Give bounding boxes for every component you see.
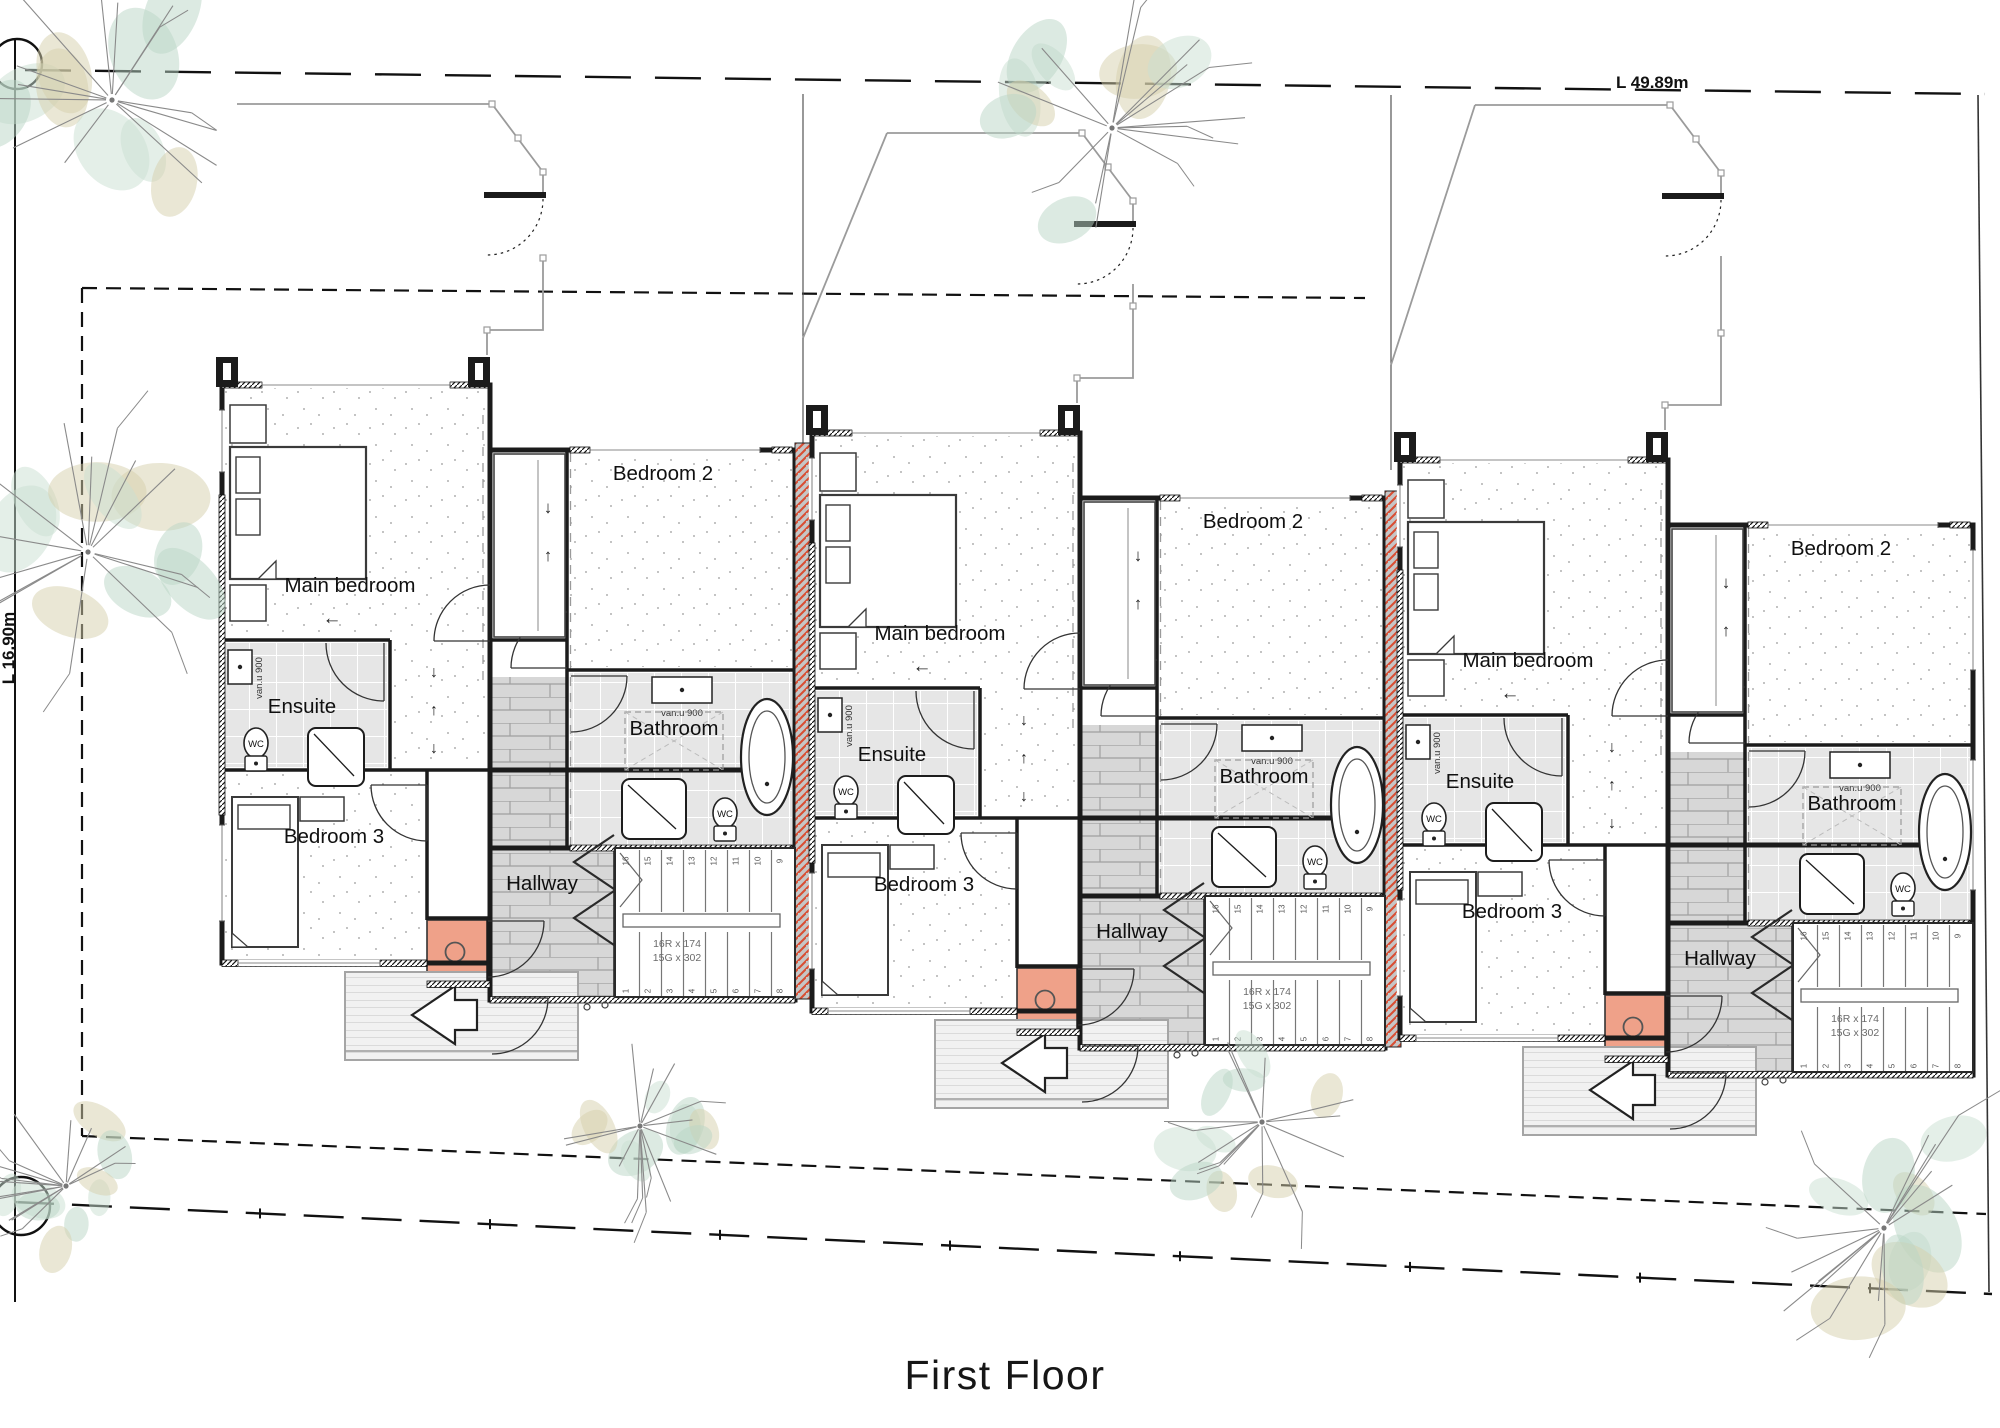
chimney — [1058, 405, 1080, 435]
toilet-icon: WC — [834, 776, 858, 819]
dimension-label-top: L 49.89m — [1616, 73, 1688, 92]
stair-tread-number: 12 — [1300, 904, 1309, 913]
stair-note-line1: 16R x 174 — [1243, 986, 1291, 998]
vanity-icon — [228, 650, 252, 684]
hatched-wall-segment — [1362, 495, 1382, 501]
room-label-ensuite: Ensuite — [268, 695, 336, 718]
stair-tread-number: 3 — [1844, 1063, 1853, 1068]
room-label-ensuite: Ensuite — [858, 743, 926, 766]
stair-tread-number: 15 — [1822, 931, 1831, 940]
stair-tread-number: 11 — [1322, 904, 1331, 913]
site-plan-drawing: L 49.89mL 16.90mvan.u 900WCvan.u 900WC↓↑… — [0, 0, 2000, 1428]
stair-note-line2: 15G x 302 — [653, 952, 702, 964]
stair-tread-number: 12 — [1888, 931, 1897, 940]
stair-tread-number: 16 — [1212, 904, 1221, 913]
arrow-down-icon: ↓ — [1020, 788, 1028, 805]
stair-tread-number: 9 — [1954, 933, 1963, 938]
arrow-down-icon: ↓ — [1608, 739, 1616, 756]
stair-tread-number: 5 — [1888, 1063, 1897, 1068]
stair-tread-number: 3 — [666, 988, 675, 993]
stair-tread-number: 9 — [1366, 906, 1375, 911]
hatched-wall-segment — [1397, 570, 1403, 890]
stairs: 1615141312111091234567816R x 17415G x 30… — [615, 848, 795, 997]
stair-tread-number: 4 — [1278, 1036, 1287, 1041]
tree — [1766, 1089, 2000, 1358]
stair-tread-number: 1 — [1212, 1036, 1221, 1041]
unit-3: van.u 900WCvan.u 900WC↓↑↓↑↓←161514131211… — [1391, 102, 1976, 1135]
stair-tread-number: 4 — [1866, 1063, 1875, 1068]
room-label-hallway: Hallway — [506, 872, 579, 895]
vanity-icon — [1406, 725, 1430, 759]
stair-tread-number: 7 — [754, 988, 763, 993]
stair-tread-number: 9 — [776, 858, 785, 863]
arrow-left-icon: ← — [323, 608, 342, 629]
stair-tread-number: 7 — [1932, 1063, 1941, 1068]
room-label-bathroom: Bathroom — [1220, 765, 1309, 788]
vanity-label: van.u 900 — [254, 657, 265, 699]
hatched-wall-segment — [1160, 495, 1180, 501]
wc-label: WC — [838, 787, 854, 798]
landing-floor — [1570, 718, 1666, 843]
arrow-up-icon: ↑ — [430, 702, 438, 719]
wc-label: WC — [248, 739, 264, 750]
stair-tread-number: 8 — [776, 988, 785, 993]
stair-note-line2: 15G x 302 — [1243, 1000, 1292, 1012]
stairs: 1615141312111091234567816R x 17415G x 30… — [1205, 896, 1385, 1045]
bathtub-icon — [741, 699, 793, 815]
landing-floor — [982, 691, 1078, 816]
stair-tread-number: 10 — [754, 856, 763, 865]
room-label-main-bedroom: Main bedroom — [284, 574, 415, 597]
stairs: 1615141312111091234567816R x 17415G x 30… — [1793, 923, 1973, 1072]
shower-icon — [622, 779, 686, 839]
toilet-icon: WC — [1422, 803, 1446, 846]
toilet-icon: WC — [1891, 873, 1915, 916]
room-label-bedroom-2: Bedroom 2 — [1203, 510, 1303, 533]
hatched-wall-segment — [1605, 1056, 1668, 1063]
room-label-ensuite: Ensuite — [1446, 770, 1514, 793]
vanity-label: van.u 900 — [844, 705, 855, 747]
stair-tread-number: 13 — [688, 856, 697, 865]
hatched-wall-segment — [570, 447, 590, 453]
arrow-down-icon: ↓ — [544, 498, 553, 517]
room-label-bedroom-2: Bedroom 2 — [613, 462, 713, 485]
stair-tread-number: 7 — [1344, 1036, 1353, 1041]
shower-icon — [1212, 827, 1276, 887]
unit-1: van.u 900WCvan.u 900WC↓↑↓↑↓←161514131211… — [216, 101, 811, 1060]
chimney — [1394, 432, 1416, 462]
wardrobe — [494, 454, 565, 637]
wc-label: WC — [1307, 857, 1323, 868]
tree — [564, 1044, 726, 1243]
stair-tread-number: 5 — [710, 988, 719, 993]
room-label-bathroom: Bathroom — [1808, 792, 1897, 815]
landing-floor — [392, 643, 488, 768]
shower-icon — [1486, 803, 1542, 861]
wc-label: WC — [1426, 814, 1442, 825]
wc-label: WC — [717, 809, 733, 820]
stair-tread-number: 8 — [1954, 1063, 1963, 1068]
room-label-bedroom-3: Bedroom 3 — [284, 825, 384, 848]
arrow-down-icon: ↓ — [430, 664, 438, 681]
stair-note-line1: 16R x 174 — [1831, 1013, 1879, 1025]
room-label-bathroom: Bathroom — [630, 717, 719, 740]
stair-tread-number: 10 — [1344, 904, 1353, 913]
vanity-icon — [1830, 752, 1890, 778]
unit-2: van.u 900WCvan.u 900WC↓↑↓↑↓←161514131211… — [803, 130, 1401, 1108]
shower-icon — [1800, 854, 1864, 914]
hatched-wall-segment — [1950, 522, 1970, 528]
stair-tread-number: 10 — [1932, 931, 1941, 940]
stair-tread-number: 15 — [644, 856, 653, 865]
stair-tread-number: 16 — [1800, 931, 1809, 940]
stair-tread-number: 16 — [622, 856, 631, 865]
vanity-icon — [1242, 725, 1302, 751]
stair-tread-number: 13 — [1278, 904, 1287, 913]
stair-tread-number: 1 — [1800, 1063, 1809, 1068]
ground-floor-outline — [803, 130, 1136, 403]
toilet-icon: WC — [713, 798, 737, 841]
room-label-hallway: Hallway — [1096, 920, 1169, 943]
stair-tread-number: 2 — [644, 988, 653, 993]
bathtub-icon — [1331, 747, 1383, 863]
party-wall — [795, 443, 811, 999]
vanity-label: van.u 900 — [1432, 732, 1443, 774]
room-label-bedroom-3: Bedroom 3 — [874, 873, 974, 896]
hatched-wall-segment — [1017, 1029, 1080, 1036]
arrow-up-icon: ↑ — [1608, 777, 1616, 794]
drawing-title: First Floor — [905, 1352, 1106, 1399]
stair-tread-number: 5 — [1300, 1036, 1309, 1041]
hatched-wall-segment — [809, 543, 815, 863]
bedroom-2-floor — [1160, 501, 1382, 715]
arrow-down-icon: ↓ — [1134, 546, 1143, 565]
room-label-bedroom-3: Bedroom 3 — [1462, 900, 1562, 923]
wardrobe — [1672, 529, 1743, 712]
arrow-left-icon: ← — [913, 656, 932, 677]
stair-note-line2: 15G x 302 — [1831, 1027, 1880, 1039]
toilet-icon: WC — [1303, 846, 1327, 889]
floor-plan-svg: L 49.89mL 16.90mvan.u 900WCvan.u 900WC↓↑… — [0, 0, 2000, 1423]
stair-note-line1: 16R x 174 — [653, 938, 701, 950]
chimney — [806, 405, 828, 435]
arrow-up-icon: ↑ — [544, 546, 553, 565]
room-label-main-bedroom: Main bedroom — [874, 622, 1005, 645]
chimney — [468, 357, 490, 387]
stair-tread-number: 6 — [1322, 1036, 1331, 1041]
tree — [0, 1093, 137, 1277]
vanity-icon — [652, 677, 712, 703]
stair-tread-number: 1 — [622, 988, 631, 993]
bedroom-2-floor — [570, 453, 792, 667]
stair-tread-number: 14 — [1844, 931, 1853, 940]
arrow-down-icon: ↓ — [1722, 573, 1731, 592]
hatched-wall-segment — [427, 981, 490, 988]
room-label-bedroom-2: Bedroom 2 — [1791, 537, 1891, 560]
hatched-wall-segment — [772, 447, 792, 453]
stair-tread-number: 8 — [1366, 1036, 1375, 1041]
hatched-wall-segment — [1748, 522, 1768, 528]
ground-floor-outline — [237, 101, 546, 355]
shower-icon — [308, 728, 364, 786]
floor-plan-canvas: L 49.89mL 16.90mvan.u 900WCvan.u 900WC↓↑… — [0, 0, 2000, 1423]
tree — [0, 0, 217, 221]
arrow-down-icon: ↓ — [1020, 712, 1028, 729]
room-label-main-bedroom: Main bedroom — [1462, 649, 1593, 672]
toilet-icon: WC — [244, 728, 268, 771]
hatched-wall-segment — [219, 495, 225, 815]
stair-tread-number: 14 — [666, 856, 675, 865]
vanity-icon — [818, 698, 842, 732]
chimney — [216, 357, 238, 387]
stair-tread-number: 6 — [732, 988, 741, 993]
arrow-down-icon: ↓ — [430, 740, 438, 757]
stair-tread-number: 6 — [1910, 1063, 1919, 1068]
stair-tread-number: 15 — [1234, 904, 1243, 913]
bedroom-2-floor — [1748, 528, 1970, 742]
tree — [0, 391, 238, 712]
stair-tread-number: 11 — [1910, 931, 1919, 940]
dimension-label-left: L 16.90m — [0, 612, 18, 684]
stair-tread-number: 12 — [710, 856, 719, 865]
tree — [1150, 1024, 1353, 1249]
shower-icon — [898, 776, 954, 834]
arrow-left-icon: ← — [1501, 683, 1520, 704]
arrow-up-icon: ↑ — [1134, 594, 1143, 613]
stair-tread-number: 14 — [1256, 904, 1265, 913]
wardrobe — [1084, 502, 1155, 685]
stair-tread-number: 11 — [732, 856, 741, 865]
ground-floor-outline — [1391, 102, 1724, 430]
arrow-up-icon: ↑ — [1020, 750, 1028, 767]
arrow-down-icon: ↓ — [1608, 815, 1616, 832]
arrow-up-icon: ↑ — [1722, 621, 1731, 640]
chimney — [1646, 432, 1668, 462]
stair-tread-number: 13 — [1866, 931, 1875, 940]
wc-label: WC — [1895, 884, 1911, 895]
room-label-hallway: Hallway — [1684, 947, 1757, 970]
stair-tread-number: 4 — [688, 988, 697, 993]
tree — [973, 0, 1252, 253]
stair-tread-number: 2 — [1822, 1063, 1831, 1068]
bathtub-icon — [1919, 774, 1971, 890]
